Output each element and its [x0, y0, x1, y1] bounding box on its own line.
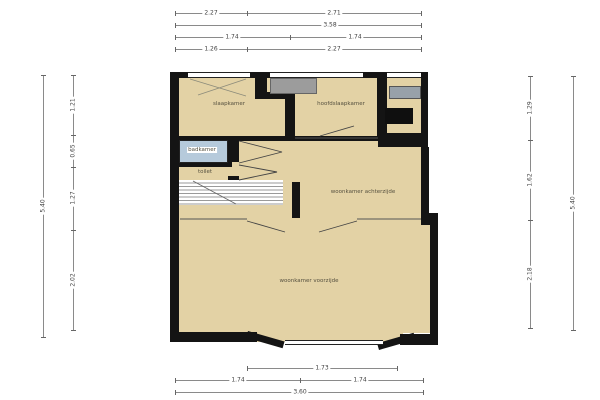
dim-tick	[41, 75, 46, 76]
room-label-hoofdslaapkamer: hoofdslaapkamer	[317, 101, 365, 107]
room-label-badkamer: badkamer	[187, 147, 217, 153]
dim-label: 5.40	[570, 194, 577, 211]
dim-tick	[571, 330, 576, 331]
dim-label: 1.73	[313, 365, 330, 372]
dim-tick	[175, 11, 176, 16]
dim-tick	[175, 35, 176, 40]
dim-label: 1.74	[223, 34, 240, 41]
dim-tick	[175, 378, 176, 383]
dim-tick	[528, 140, 533, 141]
dim-line-bottom-2	[175, 380, 423, 381]
dim-tick	[421, 35, 422, 40]
dim-line-top-2	[175, 25, 421, 26]
dim-label: 2.71	[325, 10, 342, 17]
dim-tick	[71, 230, 76, 231]
dim-tick	[290, 35, 291, 40]
dim-tick	[71, 135, 76, 136]
dim-tick	[421, 47, 422, 52]
dim-label: 0.65	[70, 142, 77, 159]
dim-label: 3.60	[291, 389, 308, 396]
dim-label: 1.62	[527, 171, 534, 188]
dim-tick	[71, 75, 76, 76]
dim-label: 1.29	[527, 99, 534, 116]
dim-label: 1.27	[70, 189, 77, 206]
dim-tick	[247, 11, 248, 16]
dim-tick	[71, 330, 76, 331]
dim-tick	[571, 76, 576, 77]
dim-label: 1.26	[202, 46, 219, 53]
dim-tick	[300, 378, 301, 383]
dim-label: 2.27	[325, 46, 342, 53]
dim-label: 1.74	[351, 377, 368, 384]
dim-tick	[528, 76, 533, 77]
dim-tick	[247, 366, 248, 371]
dim-tick	[423, 390, 424, 395]
dim-label: 2.18	[527, 265, 534, 282]
dim-tick	[528, 220, 533, 221]
dim-tick	[528, 328, 533, 329]
dim-tick	[421, 23, 422, 28]
dim-tick	[247, 47, 248, 52]
dim-label: 5.40	[40, 197, 47, 214]
dim-line-top-3	[175, 37, 421, 38]
dim-label: 1.74	[346, 34, 363, 41]
dim-tick	[423, 378, 424, 383]
dim-label: 1.21	[70, 96, 77, 113]
dim-tick	[71, 167, 76, 168]
door-swing-lines	[0, 0, 600, 400]
dim-label: 2.27	[202, 10, 219, 17]
room-label-woonkamer-voorzijde: woonkamer voorzijde	[280, 278, 339, 284]
dim-tick	[421, 11, 422, 16]
dim-tick	[397, 366, 398, 371]
dim-label: 3.58	[321, 22, 338, 29]
dim-label: 1.74	[229, 377, 246, 384]
room-label-toilet: toilet	[198, 169, 212, 175]
dim-tick	[41, 337, 46, 338]
dim-tick	[175, 23, 176, 28]
dim-label: 2.02	[70, 271, 77, 288]
floorplan-canvas: slaapkamer hoofdslaapkamer badkamer toil…	[0, 0, 600, 400]
dim-tick	[175, 47, 176, 52]
room-label-slaapkamer: slaapkamer	[213, 101, 245, 107]
room-label-woonkamer-achterzijde: woonkamer achterzijde	[331, 189, 395, 195]
dim-tick	[175, 390, 176, 395]
